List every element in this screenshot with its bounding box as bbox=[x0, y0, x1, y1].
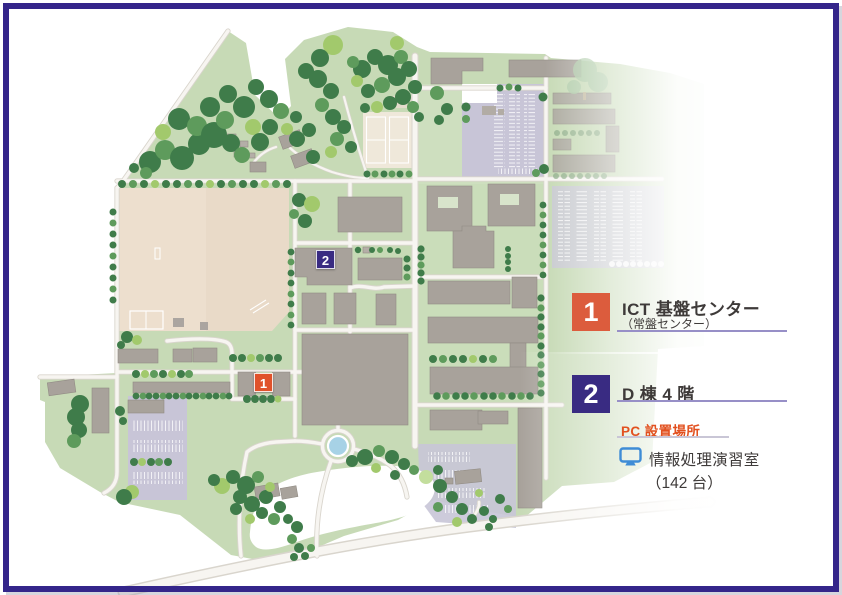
pond bbox=[328, 436, 348, 456]
legend-number-1: 1 bbox=[572, 293, 610, 331]
pc-room-label: 情報処理演習室 bbox=[649, 448, 760, 470]
monitor-icon bbox=[619, 447, 644, 472]
map-marker-1: 1 bbox=[254, 373, 273, 392]
map-marker-2: 2 bbox=[316, 250, 335, 269]
pc-heading-underline bbox=[617, 436, 729, 438]
sports-field bbox=[118, 188, 289, 331]
legend-number-2: 2 bbox=[572, 375, 610, 413]
parking-lot-north bbox=[462, 84, 546, 180]
legend-underline-2 bbox=[617, 400, 787, 402]
pc-room-capacity: （142 台） bbox=[646, 471, 723, 493]
campus-map-page: 1 2 1 ICT 基盤センター （常盤センター） 2 D 棟 4 階 PC 設… bbox=[0, 0, 842, 595]
legend-underline-1 bbox=[617, 330, 787, 332]
